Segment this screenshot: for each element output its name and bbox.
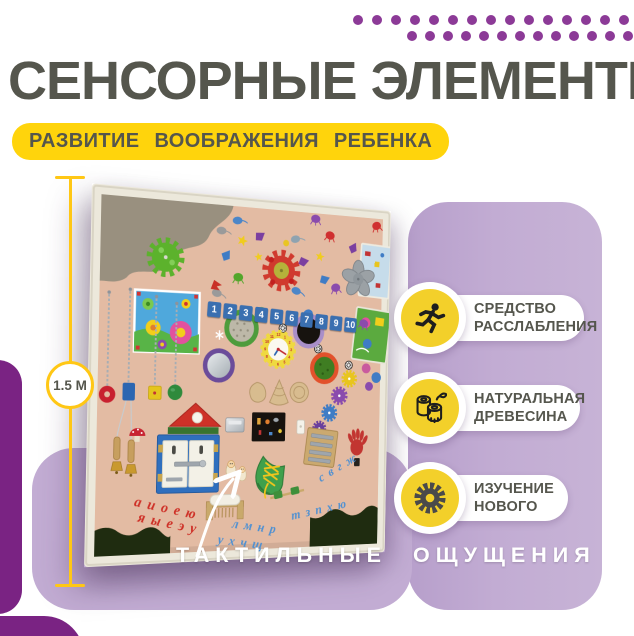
purple-dot	[448, 15, 458, 25]
light-switch	[297, 420, 305, 434]
number-tile: 10	[344, 317, 357, 333]
ruler-cap-bottom	[55, 584, 85, 587]
purple-dot	[391, 15, 401, 25]
sticker-panel	[252, 412, 286, 441]
purple-dot	[497, 31, 507, 41]
badge-line: ДРЕВЕСИНА	[474, 408, 580, 426]
wood-logs-icon	[401, 379, 459, 437]
latches-board	[303, 427, 338, 467]
svg-text:11: 11	[270, 334, 274, 339]
number-tile: 9	[329, 315, 342, 331]
purple-dot	[619, 15, 629, 25]
purple-dot	[600, 15, 610, 25]
red-gear	[265, 252, 298, 289]
badge-line: РАССЛАБЛЕНИЯ	[474, 318, 584, 336]
svg-text:10: 10	[265, 339, 270, 344]
number-tile: 8	[315, 314, 328, 330]
dots-row	[353, 15, 629, 25]
purple-dot	[353, 15, 363, 25]
badge-line: СРЕДСТВО	[474, 300, 584, 318]
purple-shape-corner	[0, 616, 84, 636]
purple-dot	[569, 31, 579, 41]
purple-dot	[524, 15, 534, 25]
runner-icon	[401, 289, 459, 347]
number-tile: 4	[254, 307, 268, 323]
purple-dot	[551, 31, 561, 41]
activity-panel	[351, 307, 391, 364]
purple-dot	[562, 15, 572, 25]
mirror-circle	[205, 350, 233, 380]
purple-dot	[425, 31, 435, 41]
purple-dot	[443, 31, 453, 41]
badge-circle	[394, 372, 466, 444]
height-label: 1.5 М	[46, 361, 94, 409]
promo-card: СЕНСОРНЫЕ ЭЛЕМЕНТЫ РАЗВИТИЕ ВООБРАЖЕНИЯ …	[0, 0, 634, 636]
dots-row	[407, 31, 633, 41]
number-tile: 6	[285, 310, 299, 326]
purple-dot	[505, 15, 515, 25]
busyboard-photo: 121234567891011	[84, 183, 391, 567]
badge-relaxation: СРЕДСТВО РАССЛАБЛЕНИЯ	[394, 282, 626, 354]
badge-line: НОВОГО	[474, 498, 568, 516]
green-gear	[150, 240, 182, 275]
wooden-shapes	[249, 379, 308, 405]
purple-dot	[372, 15, 382, 25]
badge-learning: ИЗУЧЕНИЕ НОВОГО	[394, 462, 626, 534]
page-title: СЕНСОРНЫЕ ЭЛЕМЕНТЫ	[8, 50, 634, 112]
purple-dot	[543, 15, 553, 25]
bottom-caption: ТАКТИЛЬНЫЕ ОЩУЩЕНИЯ	[176, 543, 596, 568]
badge-circle	[394, 462, 466, 534]
number-tile: 1	[207, 301, 221, 318]
number-tile: 3	[239, 305, 253, 321]
purple-dot	[581, 15, 591, 25]
badge-natural-wood: НАТУРАЛЬНАЯ ДРЕВЕСИНА	[394, 372, 626, 444]
busyboard-art: 121234567891011	[84, 183, 391, 567]
grass-circle	[312, 354, 337, 382]
badge-circle	[394, 282, 466, 354]
badge-line: ИЗУЧЕНИЕ	[474, 480, 568, 498]
purple-dot	[429, 15, 439, 25]
ruler-cap-top	[55, 176, 85, 179]
gear-icon	[401, 469, 459, 527]
subtitle-ribbon: РАЗВИТИЕ ВООБРАЖЕНИЯ РЕБЕНКА	[12, 123, 449, 160]
purple-dot	[486, 15, 496, 25]
purple-dot	[461, 31, 471, 41]
purple-dot	[515, 31, 525, 41]
purple-dot	[533, 31, 543, 41]
flower-panel	[134, 290, 200, 354]
svg-text:12: 12	[276, 332, 281, 337]
height-value: 1.5 М	[53, 378, 87, 393]
purple-dot	[605, 31, 615, 41]
purple-dot	[407, 31, 417, 41]
badge-line: НАТУРАЛЬНАЯ	[474, 390, 580, 408]
purple-dot	[410, 15, 420, 25]
purple-dot	[587, 31, 597, 41]
number-tile: 2	[223, 303, 237, 320]
purple-dot	[623, 31, 633, 41]
metal-latch	[226, 418, 245, 432]
purple-dot	[467, 15, 477, 25]
number-tile: 5	[270, 308, 284, 324]
purple-dot	[479, 31, 489, 41]
purple-shape-left	[0, 360, 22, 614]
number-tile: 7	[300, 312, 313, 328]
